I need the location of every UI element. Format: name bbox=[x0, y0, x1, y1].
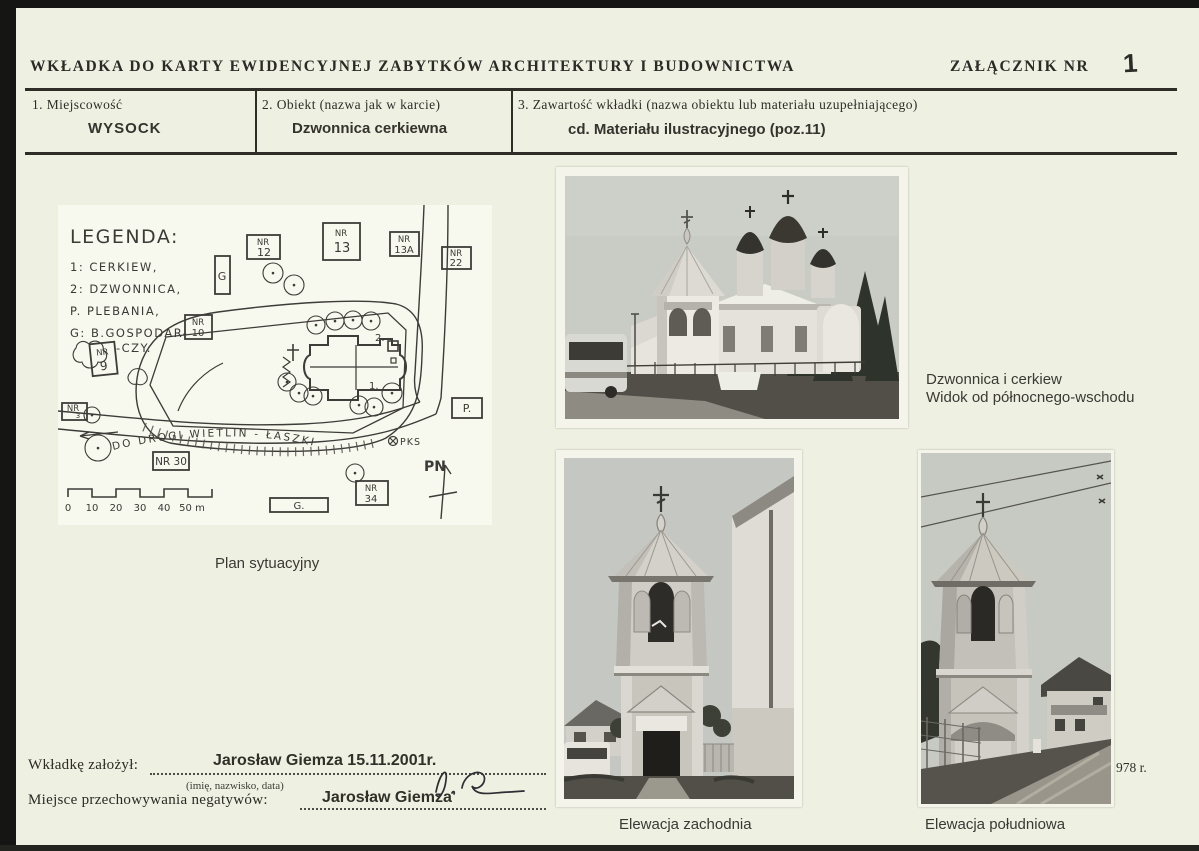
caption-northeast-line2: Widok od północnego-wschodu bbox=[926, 389, 1134, 406]
church-wall-fragment bbox=[732, 476, 794, 799]
date-note: 978 r. bbox=[1116, 760, 1147, 776]
photo-west-elevation-image bbox=[564, 458, 794, 799]
founder-hint: (imię, nazwisko, data) bbox=[186, 780, 284, 792]
planter bbox=[717, 372, 761, 390]
svg-text:NR: NR bbox=[96, 347, 109, 358]
map-scale-bar bbox=[68, 489, 212, 497]
legend-item-4: G: B.GOSPODAR- bbox=[70, 326, 188, 340]
legend-item-1: 1: CERKIEW, bbox=[70, 260, 158, 274]
signature bbox=[428, 762, 528, 808]
pks-label: PKS bbox=[400, 437, 421, 448]
photo-church-northeast-image bbox=[565, 176, 899, 419]
field-divider-2 bbox=[511, 88, 513, 155]
svg-text:P.: P. bbox=[463, 402, 471, 415]
site-plan: LEGENDA: 1: CERKIEW, 2: DZWONNICA, P. PL… bbox=[58, 205, 492, 525]
svg-text:NR 30: NR 30 bbox=[155, 456, 187, 468]
field-label-obiekt: 2. Obiekt (nazwa jak w karcie) bbox=[262, 97, 440, 113]
legend-title: LEGENDA: bbox=[70, 226, 179, 248]
svg-text:30: 30 bbox=[134, 503, 147, 514]
scanned-card: WKŁADKA DO KARTY EWIDENCYJNEJ ZABYTKÓW A… bbox=[0, 0, 1199, 851]
svg-text:50 m: 50 m bbox=[179, 503, 205, 514]
photo-church-northeast bbox=[556, 167, 908, 428]
svg-text:9: 9 bbox=[99, 359, 108, 374]
field-label-zawartosc: 3. Zawartość wkładki (nazwa obiektu lub … bbox=[518, 97, 918, 113]
map-pks-symbol bbox=[389, 437, 398, 446]
map-cross bbox=[287, 344, 299, 361]
caption-west: Elewacja zachodnia bbox=[619, 816, 752, 833]
church-mark-2: 2. bbox=[375, 333, 385, 344]
shed bbox=[702, 744, 734, 772]
svg-text:34: 34 bbox=[365, 494, 378, 505]
svg-text:13: 13 bbox=[334, 241, 351, 256]
fields-bottom-rule bbox=[25, 152, 1177, 155]
svg-text:10: 10 bbox=[86, 503, 99, 514]
founder-value: Jarosław Giemza 15.11.2001r. bbox=[213, 752, 436, 770]
bus bbox=[565, 334, 627, 398]
founder-label: Wkładkę założył: bbox=[28, 757, 138, 774]
map-small-square bbox=[391, 358, 396, 363]
site-plan-caption: Plan sytuacyjny bbox=[215, 555, 319, 572]
north-label: PN bbox=[424, 459, 446, 475]
svg-text:NR: NR bbox=[335, 229, 347, 239]
photo-south-elevation-image bbox=[921, 453, 1111, 804]
svg-text:40: 40 bbox=[158, 503, 171, 514]
photo-west-elevation bbox=[556, 450, 802, 807]
svg-text:13A: 13A bbox=[394, 245, 414, 256]
svg-text:0: 0 bbox=[65, 503, 71, 514]
legend-item-2: 2: DZWONNICA, bbox=[70, 282, 182, 296]
field-value-zawartosc: cd. Materiału ilustracyjnego (poz.11) bbox=[568, 121, 826, 138]
field-value-miejscowosc: WYSOCK bbox=[88, 120, 162, 137]
svg-text:20: 20 bbox=[110, 503, 123, 514]
scan-edge-top bbox=[0, 0, 1199, 8]
site-plan-drawing: LEGENDA: 1: CERKIEW, 2: DZWONNICA, P. PL… bbox=[58, 205, 492, 525]
attachment-number: 1 bbox=[1122, 48, 1138, 80]
scale-labels: 0 10 20 30 40 50 m bbox=[65, 503, 205, 514]
gate-post bbox=[1033, 739, 1041, 753]
scan-edge-bottom bbox=[0, 845, 1199, 851]
svg-text:12: 12 bbox=[257, 246, 271, 259]
svg-text:NR: NR bbox=[365, 484, 377, 494]
negatives-label: Miejsce przechowywania negatywów: bbox=[28, 792, 268, 809]
field-label-miejscowosc: 1. Miejscowość bbox=[32, 97, 122, 113]
page-title: WKŁADKA DO KARTY EWIDENCYJNEJ ZABYTKÓW A… bbox=[30, 58, 795, 76]
field-value-obiekt: Dzwonnica cerkiewna bbox=[292, 120, 447, 137]
scan-edge-left bbox=[0, 0, 16, 851]
header-rule bbox=[25, 88, 1177, 91]
attachment-label: ZAŁĄCZNIK NR bbox=[950, 58, 1089, 76]
map-church-plan bbox=[304, 336, 406, 400]
svg-text:NR: NR bbox=[192, 318, 204, 328]
photo-south-elevation bbox=[918, 450, 1114, 807]
legend-item-3: P. PLEBANIA, bbox=[70, 304, 160, 318]
svg-text:G: G bbox=[218, 270, 227, 283]
caption-south: Elewacja południowa bbox=[925, 816, 1065, 833]
svg-text:3: 3 bbox=[76, 412, 80, 420]
svg-text:NR: NR bbox=[398, 235, 410, 245]
svg-text:22: 22 bbox=[450, 258, 463, 269]
legend-item-5: -CZY. bbox=[116, 341, 152, 355]
field-divider-1 bbox=[255, 88, 257, 155]
svg-text:G.: G. bbox=[294, 501, 305, 512]
church-mark-1: 1. bbox=[369, 381, 379, 392]
svg-text:10: 10 bbox=[192, 328, 205, 339]
caption-northeast-line1: Dzwonnica i cerkiew bbox=[926, 371, 1062, 388]
